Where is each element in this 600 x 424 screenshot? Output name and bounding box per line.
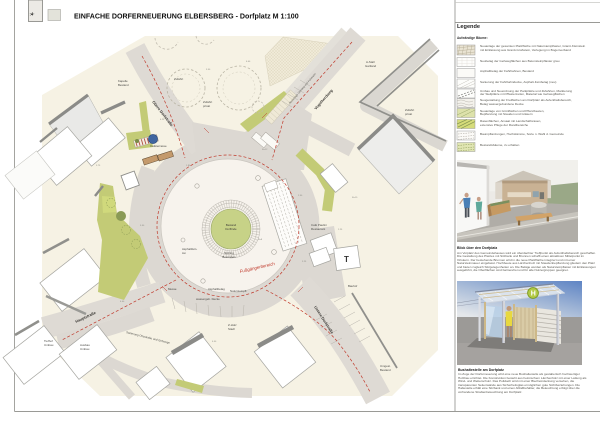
- svg-text:Restaurant: Restaurant: [311, 227, 325, 231]
- svg-text:Asphaltbelag: Asphaltbelag: [208, 287, 225, 291]
- svg-text:Stadl: Stadl: [228, 327, 235, 331]
- svg-text:Bestand: Bestand: [380, 368, 391, 372]
- svg-text:Zufahrt: Zufahrt: [174, 77, 183, 81]
- svg-text:Gartland: Gartland: [365, 64, 376, 68]
- svg-text:Bestand: Bestand: [118, 83, 129, 87]
- svg-text:privat: privat: [405, 112, 412, 116]
- svg-text:Messe: Messe: [168, 287, 177, 291]
- svg-text:Dorflinde: Dorflinde: [225, 227, 237, 231]
- svg-text:ton: ton: [182, 251, 186, 255]
- svg-text:T: T: [344, 255, 349, 264]
- svg-text:Umbau: Umbau: [44, 343, 54, 347]
- svg-text:H: H: [531, 291, 536, 298]
- svg-text:R=15: R=15: [352, 197, 358, 199]
- svg-text:wassergeb. Decke: wassergeb. Decke: [196, 297, 220, 301]
- svg-text:R=12: R=12: [262, 149, 268, 151]
- svg-text:Umbau: Umbau: [80, 347, 90, 351]
- svg-text:Caféterrasse: Caféterrasse: [150, 144, 167, 148]
- svg-text:Natursteinpfl.: Natursteinpfl.: [230, 289, 247, 293]
- svg-text:privat: privat: [203, 104, 210, 108]
- svg-text:Bauhof: Bauhof: [348, 284, 357, 288]
- svg-text:Betonstein: Betonstein: [222, 255, 236, 259]
